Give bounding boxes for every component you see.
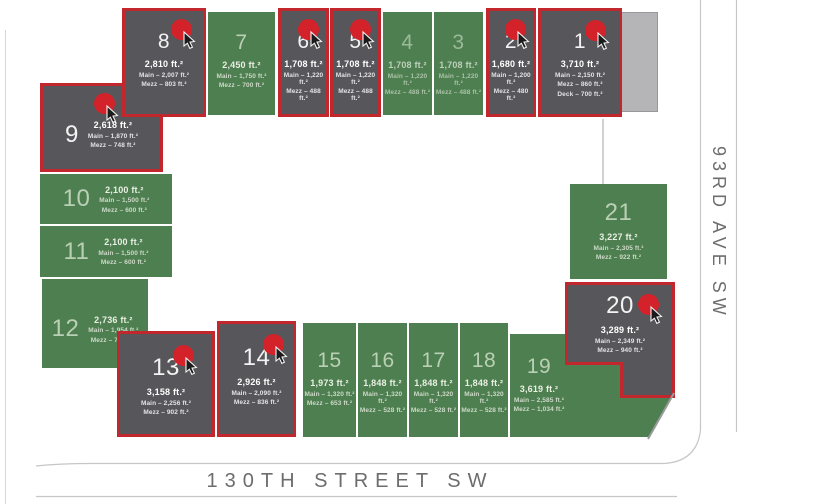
unit-8[interactable]: 8 2,810 ft.² Main – 2,007 ft.² Mezz – 80… (122, 8, 206, 117)
unit-mezz-area: Mezz – 803 ft.² (141, 81, 186, 88)
unit-mezz-area: Mezz – 902 ft.² (143, 409, 188, 416)
unit-total-area: 2,450 ft.² (222, 60, 261, 70)
unit-mezz-area: Mezz – 860 ft.² (557, 81, 602, 88)
unit-stats: 2,100 ft.² Main – 1,500 ft.² Mezz – 600 … (99, 185, 149, 214)
unit-deck-area: Deck – 700 ft.² (557, 91, 602, 98)
unit-total-area: 3,158 ft.² (147, 387, 186, 397)
sold-marker-cursor-icon (505, 19, 537, 53)
unit-main-area: Main – 1,500 ft.² (98, 250, 148, 257)
unit-number: 20 (606, 294, 634, 318)
unit-number: 11 (63, 240, 89, 264)
unit-number: 21 (605, 201, 633, 225)
unit-total-area: 1,708 ft.² (439, 60, 478, 70)
unit-main-area: Main – 1,200 ft.² (489, 72, 533, 86)
unit-mezz-area: Mezz – 1,034 ft.² (514, 406, 565, 413)
unit-total-area: 3,710 ft.² (561, 59, 600, 69)
unit-total-area: 1,848 ft.² (414, 378, 453, 388)
unit-mezz-area: Mezz – 480 ft.² (489, 88, 533, 102)
unit-6[interactable]: 6 1,708 ft.² Main – 1,220 ft.² Mezz – 48… (278, 8, 329, 117)
unit-2[interactable]: 2 1,680 ft.² Main – 1,200 ft.² Mezz – 48… (486, 8, 536, 117)
unit-total-area: 2,810 ft.² (145, 59, 184, 69)
unit-total-area: 3,619 ft.² (520, 384, 559, 394)
unit-total-area: 3,289 ft.² (601, 325, 640, 335)
unit-main-area: Main – 1,220 ft.² (333, 72, 378, 86)
unit-number: 4 (401, 32, 413, 53)
unit-4[interactable]: 4 1,708 ft.² Main – 1,220 ft.² Mezz – 48… (383, 12, 432, 115)
unit-main-area: Main – 1,750 ft.² (216, 73, 266, 80)
street-label-130th: 130TH STREET SW (100, 470, 600, 493)
unit-mezz-area: Mezz – 748 ft.² (90, 142, 135, 149)
unit-mezz-area: Mezz – 488 ft.² (436, 89, 481, 96)
sold-marker-cursor-icon (585, 20, 617, 54)
unit-number: 9 (65, 123, 79, 147)
unit-mezz-area: Mezz – 528 ft.² (411, 407, 456, 414)
unit-20-extension (620, 362, 675, 398)
sold-marker-cursor-icon (298, 19, 330, 53)
unit-main-area: Main – 2,150 ft.² (555, 72, 605, 79)
unit-total-area: 2,100 ft.² (105, 185, 144, 195)
unit-stats: 2,100 ft.² Main – 1,500 ft.² Mezz – 600 … (98, 237, 148, 266)
sold-marker-cursor-icon (173, 345, 205, 379)
unit-total-area: 2,926 ft.² (237, 377, 276, 387)
unit-main-area: Main – 1,220 ft.² (383, 73, 432, 87)
street-label-93rd: 93RD AVE SW (702, 146, 736, 376)
unit-main-area: Main – 1,320 ft.² (460, 391, 508, 405)
unit-total-area: 1,708 ft.² (284, 59, 323, 69)
unit-number: 18 (472, 350, 496, 371)
unit-main-area: Main – 2,090 ft.² (231, 390, 281, 397)
unit-mezz-area: Mezz – 600 ft.² (102, 207, 147, 214)
unit-number: 12 (52, 317, 80, 341)
unit-main-area: Main – 2,305 ft.² (593, 245, 643, 252)
unit-13[interactable]: 13 3,158 ft.² Main – 2,256 ft.² Mezz – 9… (117, 331, 215, 437)
unit-total-area: 2,100 ft.² (104, 237, 143, 247)
sold-marker-cursor-icon (171, 19, 203, 53)
unit-mezz-area: Mezz – 940 ft.² (597, 347, 642, 354)
unit-7[interactable]: 7 2,450 ft.² Main – 1,750 ft.² Mezz – 70… (208, 12, 275, 115)
unit-main-area: Main – 2,349 ft.² (595, 338, 645, 345)
unit-total-area: 1,848 ft.² (465, 378, 504, 388)
sold-marker-cursor-icon (350, 19, 382, 53)
unit-mezz-area: Mezz – 528 ft.² (360, 407, 405, 414)
unit-total-area: 1,708 ft.² (388, 60, 427, 70)
unit-mezz-area: Mezz – 488 ft.² (333, 88, 378, 102)
sold-marker-cursor-icon (263, 334, 295, 368)
unit-18[interactable]: 18 1,848 ft.² Main – 1,320 ft.² Mezz – 5… (460, 323, 508, 437)
unit-total-area: 1,973 ft.² (310, 378, 349, 388)
unit-mezz-area: Mezz – 488 ft.² (385, 89, 430, 96)
unit-number: 3 (452, 32, 464, 53)
unit-total-area: 2,736 ft.² (94, 315, 133, 325)
unit-main-area: Main – 1,870 ft.² (88, 133, 138, 140)
unit-main-area: Main – 2,585 ft.² (514, 397, 564, 404)
unit-main-area: Main – 1,500 ft.² (99, 197, 149, 204)
unit-total-area: 1,680 ft.² (492, 59, 531, 69)
unit-main-area: Main – 1,220 ft.² (434, 73, 483, 87)
unit-number: 16 (370, 350, 394, 371)
unit-main-area: Main – 1,320 ft.² (358, 391, 407, 405)
unit-14[interactable]: 14 2,926 ft.² Main – 2,090 ft.² Mezz – 8… (217, 321, 296, 437)
unit-total-area: 1,848 ft.² (363, 378, 402, 388)
unit-total-area: 1,708 ft.² (336, 59, 375, 69)
unit-number: 19 (527, 356, 551, 377)
unit-number: 8 (158, 31, 170, 52)
unit-mezz-area: Mezz – 700 ft.² (219, 82, 264, 89)
unit-number: 10 (63, 187, 91, 211)
unit-main-area: Main – 1,220 ft.² (281, 72, 326, 86)
unit-mezz-area: Mezz – 653 ft.² (307, 400, 352, 407)
unit-15[interactable]: 15 1,973 ft.² Main – 1,320 ft.² Mezz – 6… (303, 323, 356, 437)
unit-number: 15 (317, 350, 341, 371)
unit-mezz-area: Mezz – 922 ft.² (596, 254, 641, 261)
unit-main-area: Main – 1,320 ft.² (409, 391, 458, 405)
unit-19[interactable]: 19 3,619 ft.² Main – 2,585 ft.² Mezz – 1… (510, 334, 568, 437)
unit-1[interactable]: 1 3,710 ft.² Main – 2,150 ft.² Mezz – 86… (538, 8, 622, 117)
unit-10[interactable]: 10 2,100 ft.² Main – 1,500 ft.² Mezz – 6… (40, 174, 172, 224)
unit-20[interactable]: 20 3,289 ft.² Main – 2,349 ft.² Mezz – 9… (565, 282, 675, 365)
unit-11[interactable]: 11 2,100 ft.² Main – 1,500 ft.² Mezz – 6… (40, 226, 172, 277)
unit-21[interactable]: 21 3,227 ft.² Main – 2,305 ft.² Mezz – 9… (570, 184, 667, 279)
utility-structure (620, 12, 658, 112)
unit-main-area: Main – 1,320 ft.² (304, 391, 354, 398)
unit-mezz-area: Mezz – 528 ft.² (461, 407, 506, 414)
sold-marker-cursor-icon (638, 294, 670, 328)
unit-16[interactable]: 16 1,848 ft.² Main – 1,320 ft.² Mezz – 5… (358, 323, 407, 437)
unit-total-area: 3,227 ft.² (599, 232, 638, 242)
unit-number: 7 (235, 32, 247, 53)
unit-5[interactable]: 5 1,708 ft.² Main – 1,220 ft.² Mezz – 48… (330, 8, 381, 117)
unit-17[interactable]: 17 1,848 ft.² Main – 1,320 ft.² Mezz – 5… (409, 323, 458, 437)
unit-3[interactable]: 3 1,708 ft.² Main – 1,220 ft.² Mezz – 48… (434, 12, 483, 115)
unit-main-area: Main – 2,256 ft.² (141, 400, 191, 407)
site-plan-map: 3 1,708 ft.² Main – 1,220 ft.² Mezz – 48… (0, 0, 814, 504)
unit-number: 17 (421, 350, 445, 371)
unit-mezz-area: Mezz – 836 ft.² (234, 399, 279, 406)
unit-main-area: Main – 2,007 ft.² (139, 72, 189, 79)
unit-mezz-area: Mezz – 600 ft.² (101, 259, 146, 266)
unit-mezz-area: Mezz – 488 ft.² (281, 88, 326, 102)
